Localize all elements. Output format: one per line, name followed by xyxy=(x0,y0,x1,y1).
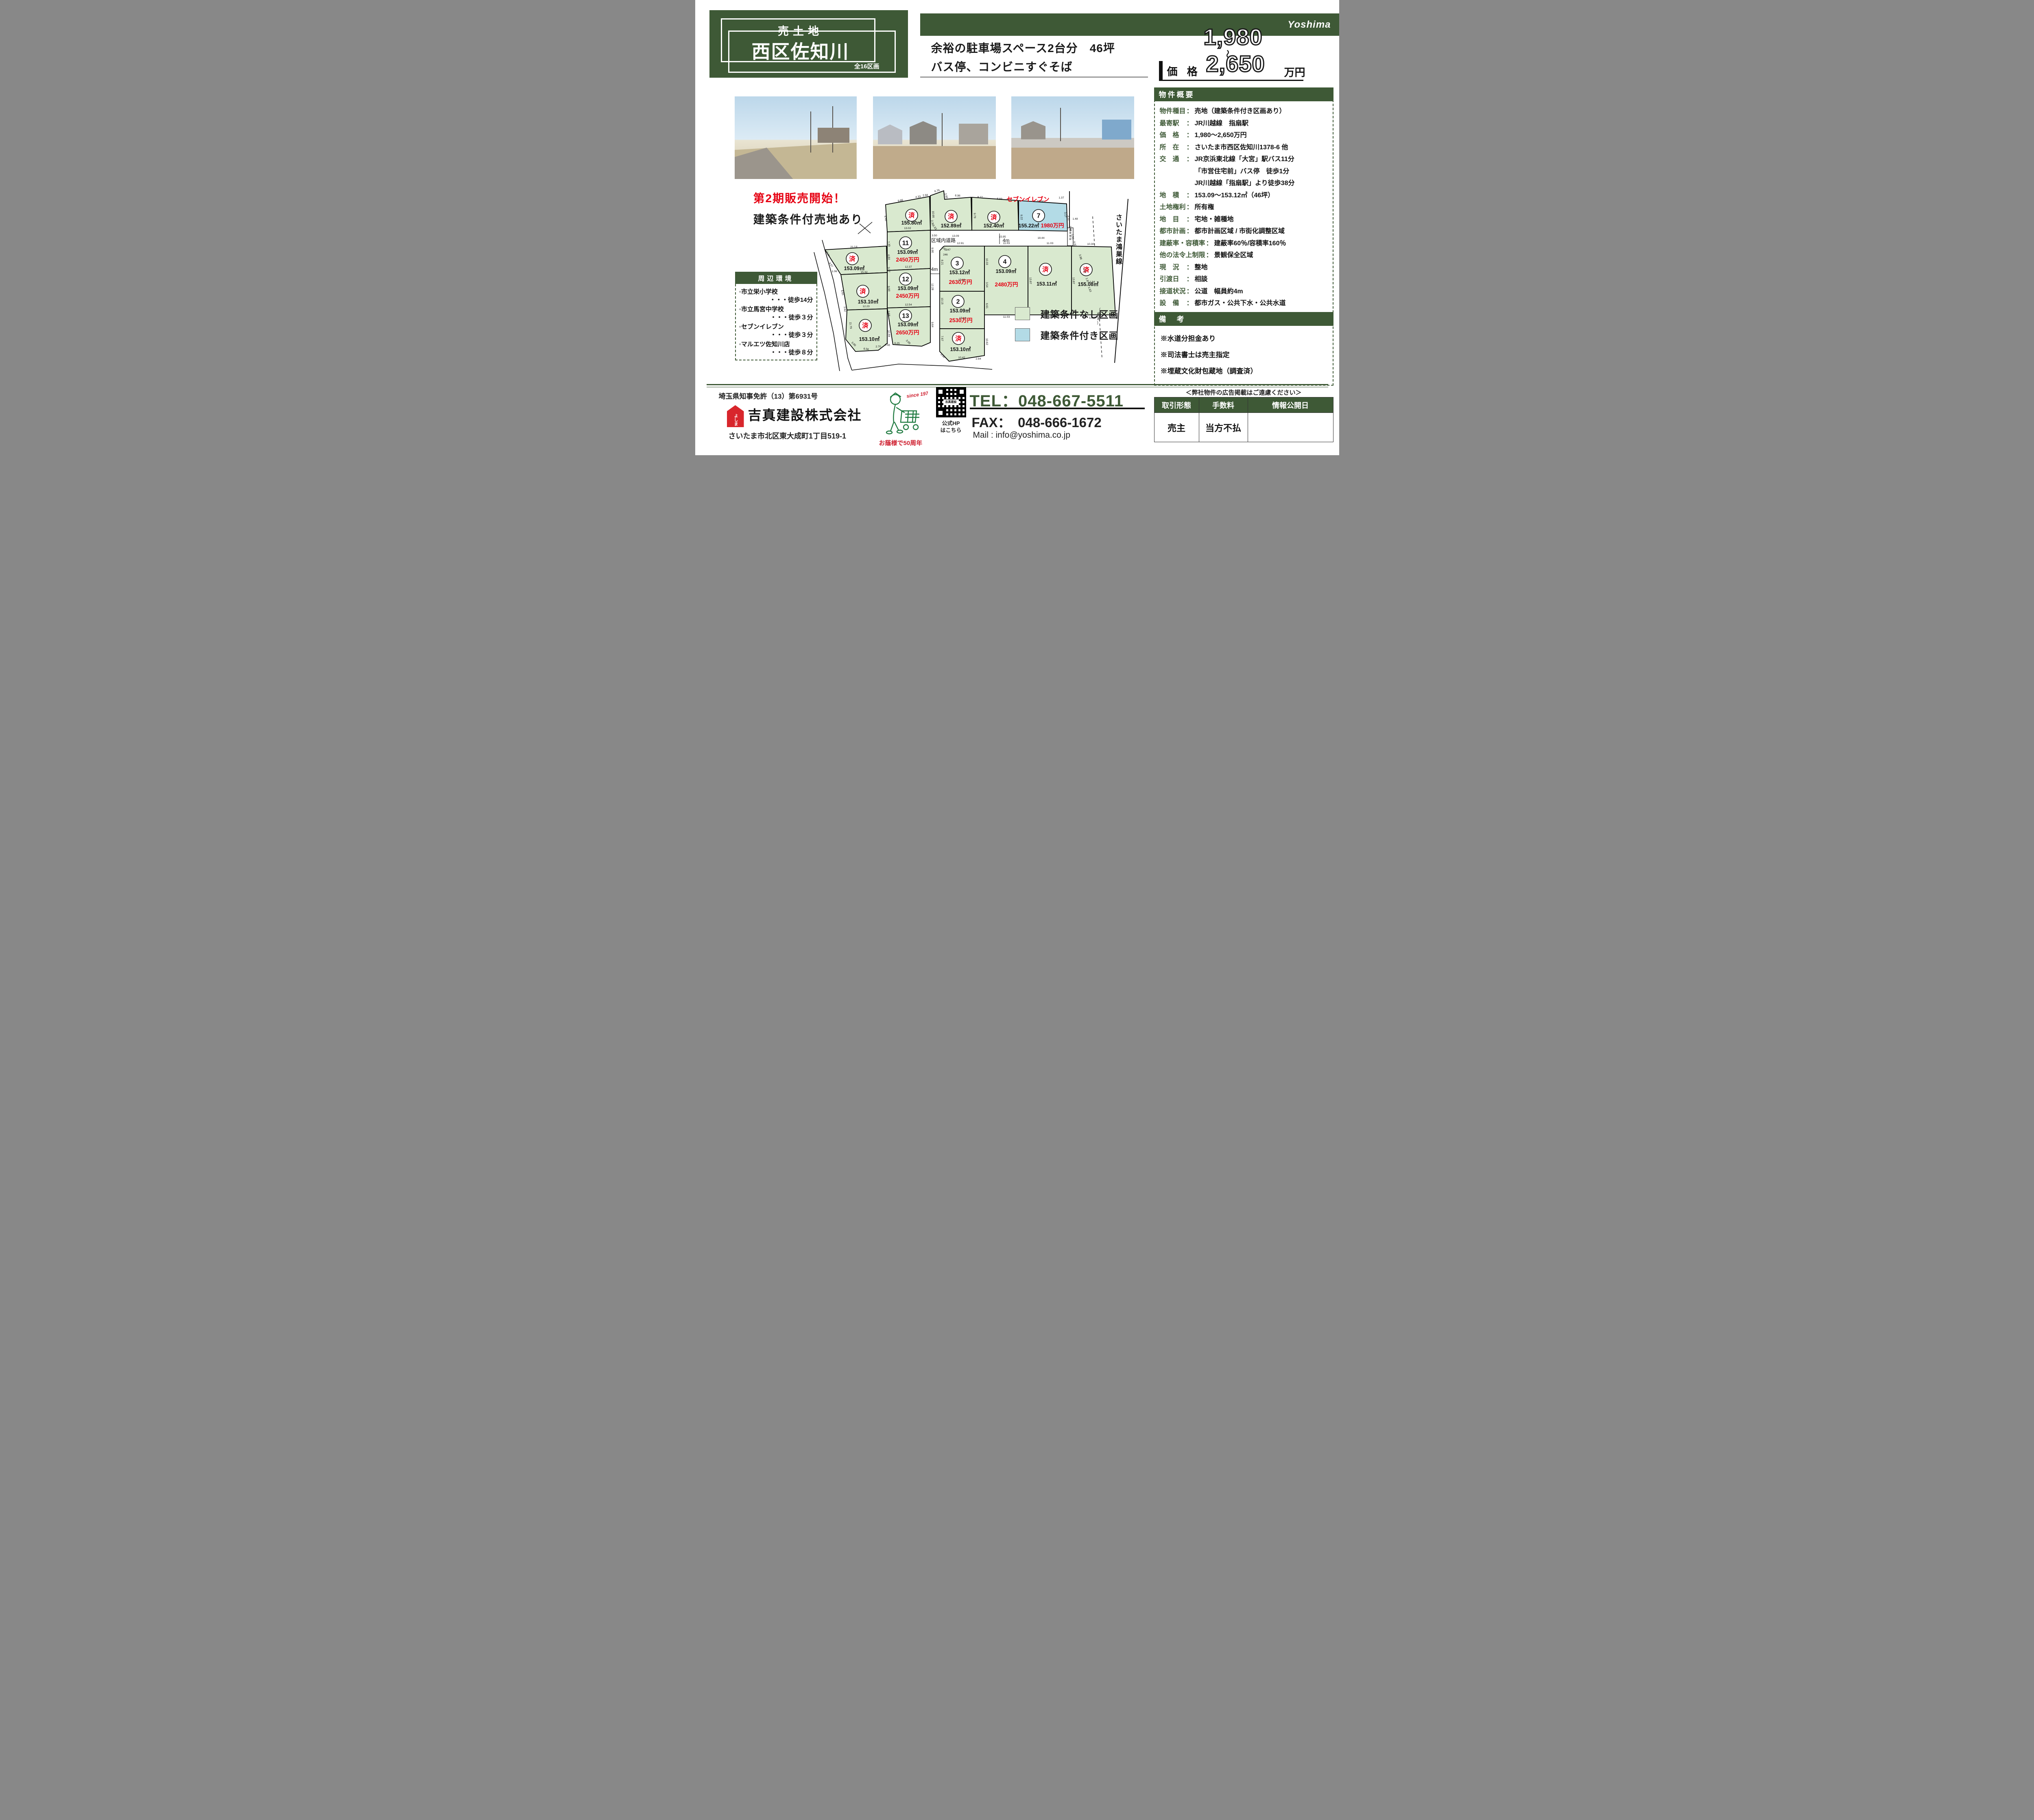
svg-text:155.80㎡: 155.80㎡ xyxy=(901,220,922,226)
overview-row: 引渡日 ：相談 xyxy=(1160,273,1330,286)
svg-text:152.89㎡: 152.89㎡ xyxy=(941,223,961,229)
map-label: セブンイレブン xyxy=(1006,196,1049,203)
env-item-name: ◦マルエツ佐知川店 xyxy=(739,340,813,348)
lot-13: 13153.09㎡2650万円 xyxy=(887,307,930,346)
license-number: 埼玉県知事免許（13）第6931号 xyxy=(719,391,818,401)
legend-swatch-blue xyxy=(1015,328,1030,341)
qr-caption: 吉真建設 xyxy=(943,399,959,405)
property-overview-panel: 物件概要 物件種目：売地（建築条件付き区画あり）最寄駅 ：JR川越線 指扇駅価 … xyxy=(1154,87,1333,386)
svg-text:7.67: 7.67 xyxy=(940,336,943,341)
svg-text:153.09㎡: 153.09㎡ xyxy=(897,249,918,255)
svg-text:11.03: 11.03 xyxy=(1046,242,1053,245)
photo-dirt xyxy=(1011,148,1134,179)
svg-text:3: 3 xyxy=(955,260,959,267)
email-address: Mail : info@yoshima.co.jp xyxy=(973,430,1071,440)
svg-text:9.79: 9.79 xyxy=(973,213,976,218)
svg-text:4.84: 4.84 xyxy=(887,254,890,260)
map-label: 4m xyxy=(1002,238,1009,243)
overview-row: 地 積 ：153.09〜153.12㎡（46坪） xyxy=(1160,190,1330,202)
svg-text:11.03: 11.03 xyxy=(1003,316,1010,319)
site-photo-lots-wall xyxy=(1011,96,1134,179)
svg-text:済: 済 xyxy=(948,213,954,220)
svg-text:10.30: 10.30 xyxy=(1087,243,1094,246)
svg-text:3.37: 3.37 xyxy=(887,267,890,273)
svg-text:3.11: 3.11 xyxy=(1067,215,1070,221)
svg-text:済: 済 xyxy=(862,322,869,330)
map-label: 清掃施設 xyxy=(1069,228,1072,241)
lot-12: 12153.09㎡2450万円 xyxy=(887,268,930,308)
env-item-walk: ・・・徒歩８分 xyxy=(739,348,813,357)
svg-text:2.70: 2.70 xyxy=(875,345,881,348)
qr-code: 吉真建設 xyxy=(936,387,966,417)
lot-4: 4153.09㎡2480万円 xyxy=(984,246,1028,315)
env-item-walk: ・・・徒歩３分 xyxy=(739,313,813,322)
svg-text:12.28: 12.28 xyxy=(930,283,934,290)
env-item-name: ◦市立馬宮中学校 xyxy=(739,305,813,313)
lot-2: 2153.09㎡2530万円 xyxy=(940,291,984,329)
svg-text:2450万円: 2450万円 xyxy=(896,257,919,263)
photo-blue-fence xyxy=(1102,120,1131,140)
env-item-name: ◦市立栄小学校 xyxy=(739,287,813,296)
svg-text:153.10㎡: 153.10㎡ xyxy=(858,299,878,305)
overview-row: 物件種目：売地（建築条件付き区画あり） xyxy=(1160,105,1330,118)
svg-text:1.37: 1.37 xyxy=(1058,196,1064,199)
svg-text:12.91: 12.91 xyxy=(957,242,964,245)
lot-sold: 済153.10㎡ xyxy=(846,309,887,351)
svg-text:10.42: 10.42 xyxy=(958,356,965,359)
badge-subtitle: 全16区画 xyxy=(854,62,880,70)
svg-text:6.25: 6.25 xyxy=(894,342,900,345)
photo-pole xyxy=(1060,108,1061,141)
overview-row: 地 目 ：宅地・雑種地 xyxy=(1160,214,1330,226)
surroundings-header: 周辺環境 xyxy=(735,272,817,284)
svg-text:7: 7 xyxy=(1037,213,1040,220)
svg-text:3.50: 3.50 xyxy=(932,234,937,237)
svg-text:246: 246 xyxy=(943,253,948,256)
svg-text:8.61: 8.61 xyxy=(840,290,844,296)
surroundings-list: ◦市立栄小学校・・・徒歩14分◦市立馬宮中学校・・・徒歩３分◦セブンイレブン・・… xyxy=(735,284,817,360)
overview-row: 建蔽率・容積率：建蔽率60％/容積率160％ xyxy=(1160,238,1330,250)
anniversary-text: お蔭様で50周年 xyxy=(879,439,923,447)
svg-text:153.11㎡: 153.11㎡ xyxy=(1036,281,1057,287)
lot-11: 11153.09㎡2450万円 xyxy=(887,230,930,271)
svg-text:済: 済 xyxy=(991,214,997,221)
lot-7: 7155.22㎡1980万円 xyxy=(1018,201,1067,231)
phone-underline xyxy=(970,408,1145,409)
deal-date-value xyxy=(1248,413,1333,442)
catch-copy: 余裕の駐車場スペース2台分 46坪 バス停、コンビニすぐそば xyxy=(931,39,1115,76)
photo-house xyxy=(910,121,936,144)
overview-row: 土地権利：所有権 xyxy=(1160,201,1330,214)
svg-text:13.02: 13.02 xyxy=(904,227,911,230)
svg-text:2450万円: 2450万円 xyxy=(896,293,919,299)
svg-text:4.56: 4.56 xyxy=(884,343,890,347)
badge-title: 西区佐知川 xyxy=(709,37,892,64)
sales-announcement: 第2期販売開始！ xyxy=(753,190,846,206)
photo-pole xyxy=(942,113,943,146)
price-low: 1,980 xyxy=(1204,24,1263,50)
catch-line-2: バス停、コンビニすぐそば xyxy=(931,58,1115,76)
official-hp-note: 公式HP はこちら xyxy=(933,420,969,434)
overview-row: 最寄駅 ：JR川越線 指扇駅 xyxy=(1160,118,1330,130)
hp-line1: 公式HP xyxy=(933,420,969,427)
anniversary-mascot-icon: since 1971 xyxy=(883,387,928,437)
site-photo-field-road xyxy=(735,96,857,179)
site-photo-lots-houses xyxy=(873,96,996,179)
qr-finder xyxy=(958,388,965,395)
site-plan-map: 済155.80㎡済152.89㎡済152.40㎡7155.22㎡1980万円11… xyxy=(817,179,1159,374)
lot-3: 3153.12㎡2630万円 xyxy=(940,246,984,291)
road-line xyxy=(852,364,992,370)
env-item-walk: ・・・徒歩３分 xyxy=(739,331,813,340)
svg-text:9.27: 9.27 xyxy=(977,196,983,199)
ad-disclaimer: ＜弊社物件の広告掲載はご遠慮ください＞ xyxy=(1154,388,1333,397)
svg-text:153.10㎡: 153.10㎡ xyxy=(859,336,880,342)
overview-row: 都市計画：都市計画区域 / 市街化調整区域 xyxy=(1160,225,1330,238)
photo-house xyxy=(959,124,988,144)
svg-text:済: 済 xyxy=(849,255,856,263)
svg-text:13.87: 13.87 xyxy=(1072,277,1075,284)
svg-text:3.62: 3.62 xyxy=(843,306,846,312)
price-underline xyxy=(1159,80,1303,81)
svg-text:10.62: 10.62 xyxy=(985,338,988,345)
lot-sold: 済155.80㎡ xyxy=(886,196,930,232)
svg-text:11: 11 xyxy=(902,240,909,247)
flyer-page: 売土地 西区佐知川 全16区画 Yoshima 余裕の駐車場スペース2台分 46… xyxy=(695,0,1339,455)
deal-info-table: 取引形態 手数料 情報公開日 売主 当方不払 xyxy=(1154,397,1333,442)
svg-text:2.56: 2.56 xyxy=(922,194,928,197)
svg-text:2650万円: 2650万円 xyxy=(896,330,919,336)
overview-header: 物件概要 xyxy=(1154,87,1333,101)
photo-house xyxy=(1021,121,1045,140)
svg-text:8.21: 8.21 xyxy=(940,260,943,265)
remark-item: ※埋蔵文化財包蔵地（調査済） xyxy=(1161,363,1329,380)
legend-swatch-green xyxy=(1015,307,1030,320)
company-logo-chars: よしま xyxy=(732,414,738,426)
overview-row: 価 格 ：1,980〜2,650万円 xyxy=(1160,129,1330,142)
svg-text:2.68: 2.68 xyxy=(887,311,890,316)
svg-text:済: 済 xyxy=(1042,266,1049,273)
svg-text:2.84: 2.84 xyxy=(976,358,981,360)
deal-header-type: 取引形態 xyxy=(1154,397,1199,413)
svg-text:8.40: 8.40 xyxy=(884,216,887,221)
remark-item: ※司法書士は売主指定 xyxy=(1161,347,1329,363)
svg-text:3.17: 3.17 xyxy=(1063,212,1067,218)
deal-type-value: 売主 xyxy=(1154,413,1199,442)
svg-text:12: 12 xyxy=(902,276,909,283)
catch-line-1: 余裕の駐車場スペース2台分 46坪 xyxy=(931,39,1115,58)
svg-text:12.54: 12.54 xyxy=(905,303,912,306)
photo-house xyxy=(818,128,849,143)
legend-label: 建築条件付き区画 xyxy=(1041,328,1119,342)
overview-row: 他の法令上制限：景観保全区域 xyxy=(1160,249,1330,262)
svg-text:18.44: 18.44 xyxy=(1037,237,1044,240)
svg-text:3.54: 3.54 xyxy=(985,282,988,288)
price-left-bar xyxy=(1159,61,1163,80)
svg-text:6.96: 6.96 xyxy=(955,194,960,198)
svg-text:153.09㎡: 153.09㎡ xyxy=(995,268,1016,274)
svg-text:11.79: 11.79 xyxy=(849,322,852,329)
top-bar: Yoshima xyxy=(920,13,1339,36)
remarks-list: ※水道分担金あり※司法書士は売主指定※埋蔵文化財包蔵地（調査済） xyxy=(1161,331,1329,380)
surroundings-box: 周辺環境 ◦市立栄小学校・・・徒歩14分◦市立馬宮中学校・・・徒歩３分◦セブンイ… xyxy=(735,272,817,360)
remark-item: ※水道分担金あり xyxy=(1161,331,1329,347)
svg-text:9.22: 9.22 xyxy=(1019,214,1022,220)
deal-header-fee: 手数料 xyxy=(1199,397,1248,413)
qr-finder xyxy=(937,388,944,395)
svg-text:10.66: 10.66 xyxy=(931,211,934,218)
svg-text:153.09㎡: 153.09㎡ xyxy=(897,321,918,327)
company-logo-icon: よしま xyxy=(727,405,744,427)
badge-category: 売土地 xyxy=(709,22,892,38)
title-badge: 売土地 西区佐知川 全16区画 xyxy=(709,10,908,78)
svg-text:15.32: 15.32 xyxy=(860,271,867,274)
svg-text:10.15: 10.15 xyxy=(940,297,943,304)
svg-text:済: 済 xyxy=(955,335,962,343)
svg-text:153.09㎡: 153.09㎡ xyxy=(844,265,864,271)
env-item-name: ◦セブンイレブン xyxy=(739,322,813,331)
svg-text:153.10㎡: 153.10㎡ xyxy=(950,346,971,352)
overview-row: 現 況 ：整地 xyxy=(1160,262,1330,274)
svg-text:15.14: 15.14 xyxy=(959,317,966,320)
photo-dirt xyxy=(873,146,996,179)
brand-logo-text: Yoshima xyxy=(1288,19,1331,31)
svg-text:153.12㎡: 153.12㎡ xyxy=(949,269,970,275)
photo-pole xyxy=(810,111,811,153)
svg-text:153.09㎡: 153.09㎡ xyxy=(897,285,918,291)
env-item-walk: ・・・徒歩14分 xyxy=(739,296,813,305)
svg-text:9.90: 9.90 xyxy=(930,247,933,253)
svg-text:2480万円: 2480万円 xyxy=(995,282,1018,288)
catch-underline xyxy=(920,76,1148,78)
svg-text:13.87: 13.87 xyxy=(1028,277,1032,284)
svg-text:12.37: 12.37 xyxy=(905,266,912,268)
legend-with-conditions: 建築条件付き区画 xyxy=(1015,328,1119,342)
overview-row: 設 備 ：都市ガス・公共下水・公共水道 xyxy=(1160,297,1330,310)
lot-sold: 済152.89㎡ xyxy=(930,191,972,230)
svg-text:152.40㎡: 152.40㎡ xyxy=(983,223,1004,229)
svg-text:6.69: 6.69 xyxy=(997,198,1002,201)
company-name: 吉真建設株式会社 xyxy=(748,404,862,424)
overview-row: 交 通 ：JR京浜東北線「大宮」駅バス11分「市営住宅前」バス停 徒歩1分JR川… xyxy=(1160,153,1330,190)
svg-text:済: 済 xyxy=(860,288,866,295)
svg-text:1.48: 1.48 xyxy=(1072,218,1078,220)
svg-text:155.22㎡: 155.22㎡ xyxy=(1018,223,1039,229)
since-1971-text: since 1971 xyxy=(906,390,928,399)
svg-text:247: 247 xyxy=(946,249,951,251)
qr-finder xyxy=(937,409,944,417)
svg-text:153.09㎡: 153.09㎡ xyxy=(949,308,970,314)
price-label: 価 格 xyxy=(1167,63,1201,79)
svg-text:1.06: 1.06 xyxy=(831,270,837,273)
map-label: さいたま鴻巣線 xyxy=(1115,214,1122,265)
price-unit: 万円 xyxy=(1284,64,1305,79)
lot-sold: 済153.11㎡ xyxy=(1028,246,1072,315)
svg-text:13.09: 13.09 xyxy=(952,235,959,238)
svg-text:10.33: 10.33 xyxy=(985,258,988,265)
hp-line2: はこちら xyxy=(933,427,969,434)
overview-rows: 物件種目：売地（建築条件付き区画あり）最寄駅 ：JR川越線 指扇駅価 格 ：1,… xyxy=(1160,105,1330,310)
svg-text:13: 13 xyxy=(902,313,909,320)
svg-text:1.84: 1.84 xyxy=(1089,281,1095,284)
footer-separator xyxy=(707,384,1328,387)
svg-text:21.14: 21.14 xyxy=(850,246,858,249)
legend-label: 建築条件なし区画 xyxy=(1041,307,1119,321)
map-label: 4m xyxy=(931,266,938,272)
svg-text:15.03: 15.03 xyxy=(958,279,965,282)
company-address: さいたま市北区東大成町1丁目519-1 xyxy=(729,430,847,441)
conditional-lots-note: 建築条件付売地あり xyxy=(753,211,863,227)
svg-text:済: 済 xyxy=(908,212,915,219)
svg-text:9.64: 9.64 xyxy=(930,322,933,327)
svg-text:8.90: 8.90 xyxy=(887,286,890,292)
lot-sold: 済153.10㎡ xyxy=(841,273,887,310)
remarks-header: 備 考 xyxy=(1154,312,1333,326)
overview-row: 接道状況：公道 幅員約4m xyxy=(1160,286,1330,298)
svg-text:2: 2 xyxy=(956,299,960,306)
price-high: 2,650 xyxy=(1206,50,1265,77)
svg-text:10.59: 10.59 xyxy=(887,330,890,337)
deal-header-date: 情報公開日 xyxy=(1248,397,1333,413)
overview-row: 所 在 ：さいたま市西区佐知川1378-6 他 xyxy=(1160,142,1330,154)
fax-number: FAX： 048-666-1672 xyxy=(972,412,1102,431)
deal-fee-value: 当方不払 xyxy=(1199,413,1248,442)
map-label: 区域内道路 xyxy=(931,237,955,243)
legend-no-conditions: 建築条件なし区画 xyxy=(1015,307,1119,321)
svg-text:4: 4 xyxy=(1003,259,1006,266)
photo-house xyxy=(878,124,902,144)
svg-text:1980万円: 1980万円 xyxy=(1041,223,1064,229)
svg-text:6.61: 6.61 xyxy=(985,303,988,309)
svg-text:12.23: 12.23 xyxy=(862,305,869,308)
